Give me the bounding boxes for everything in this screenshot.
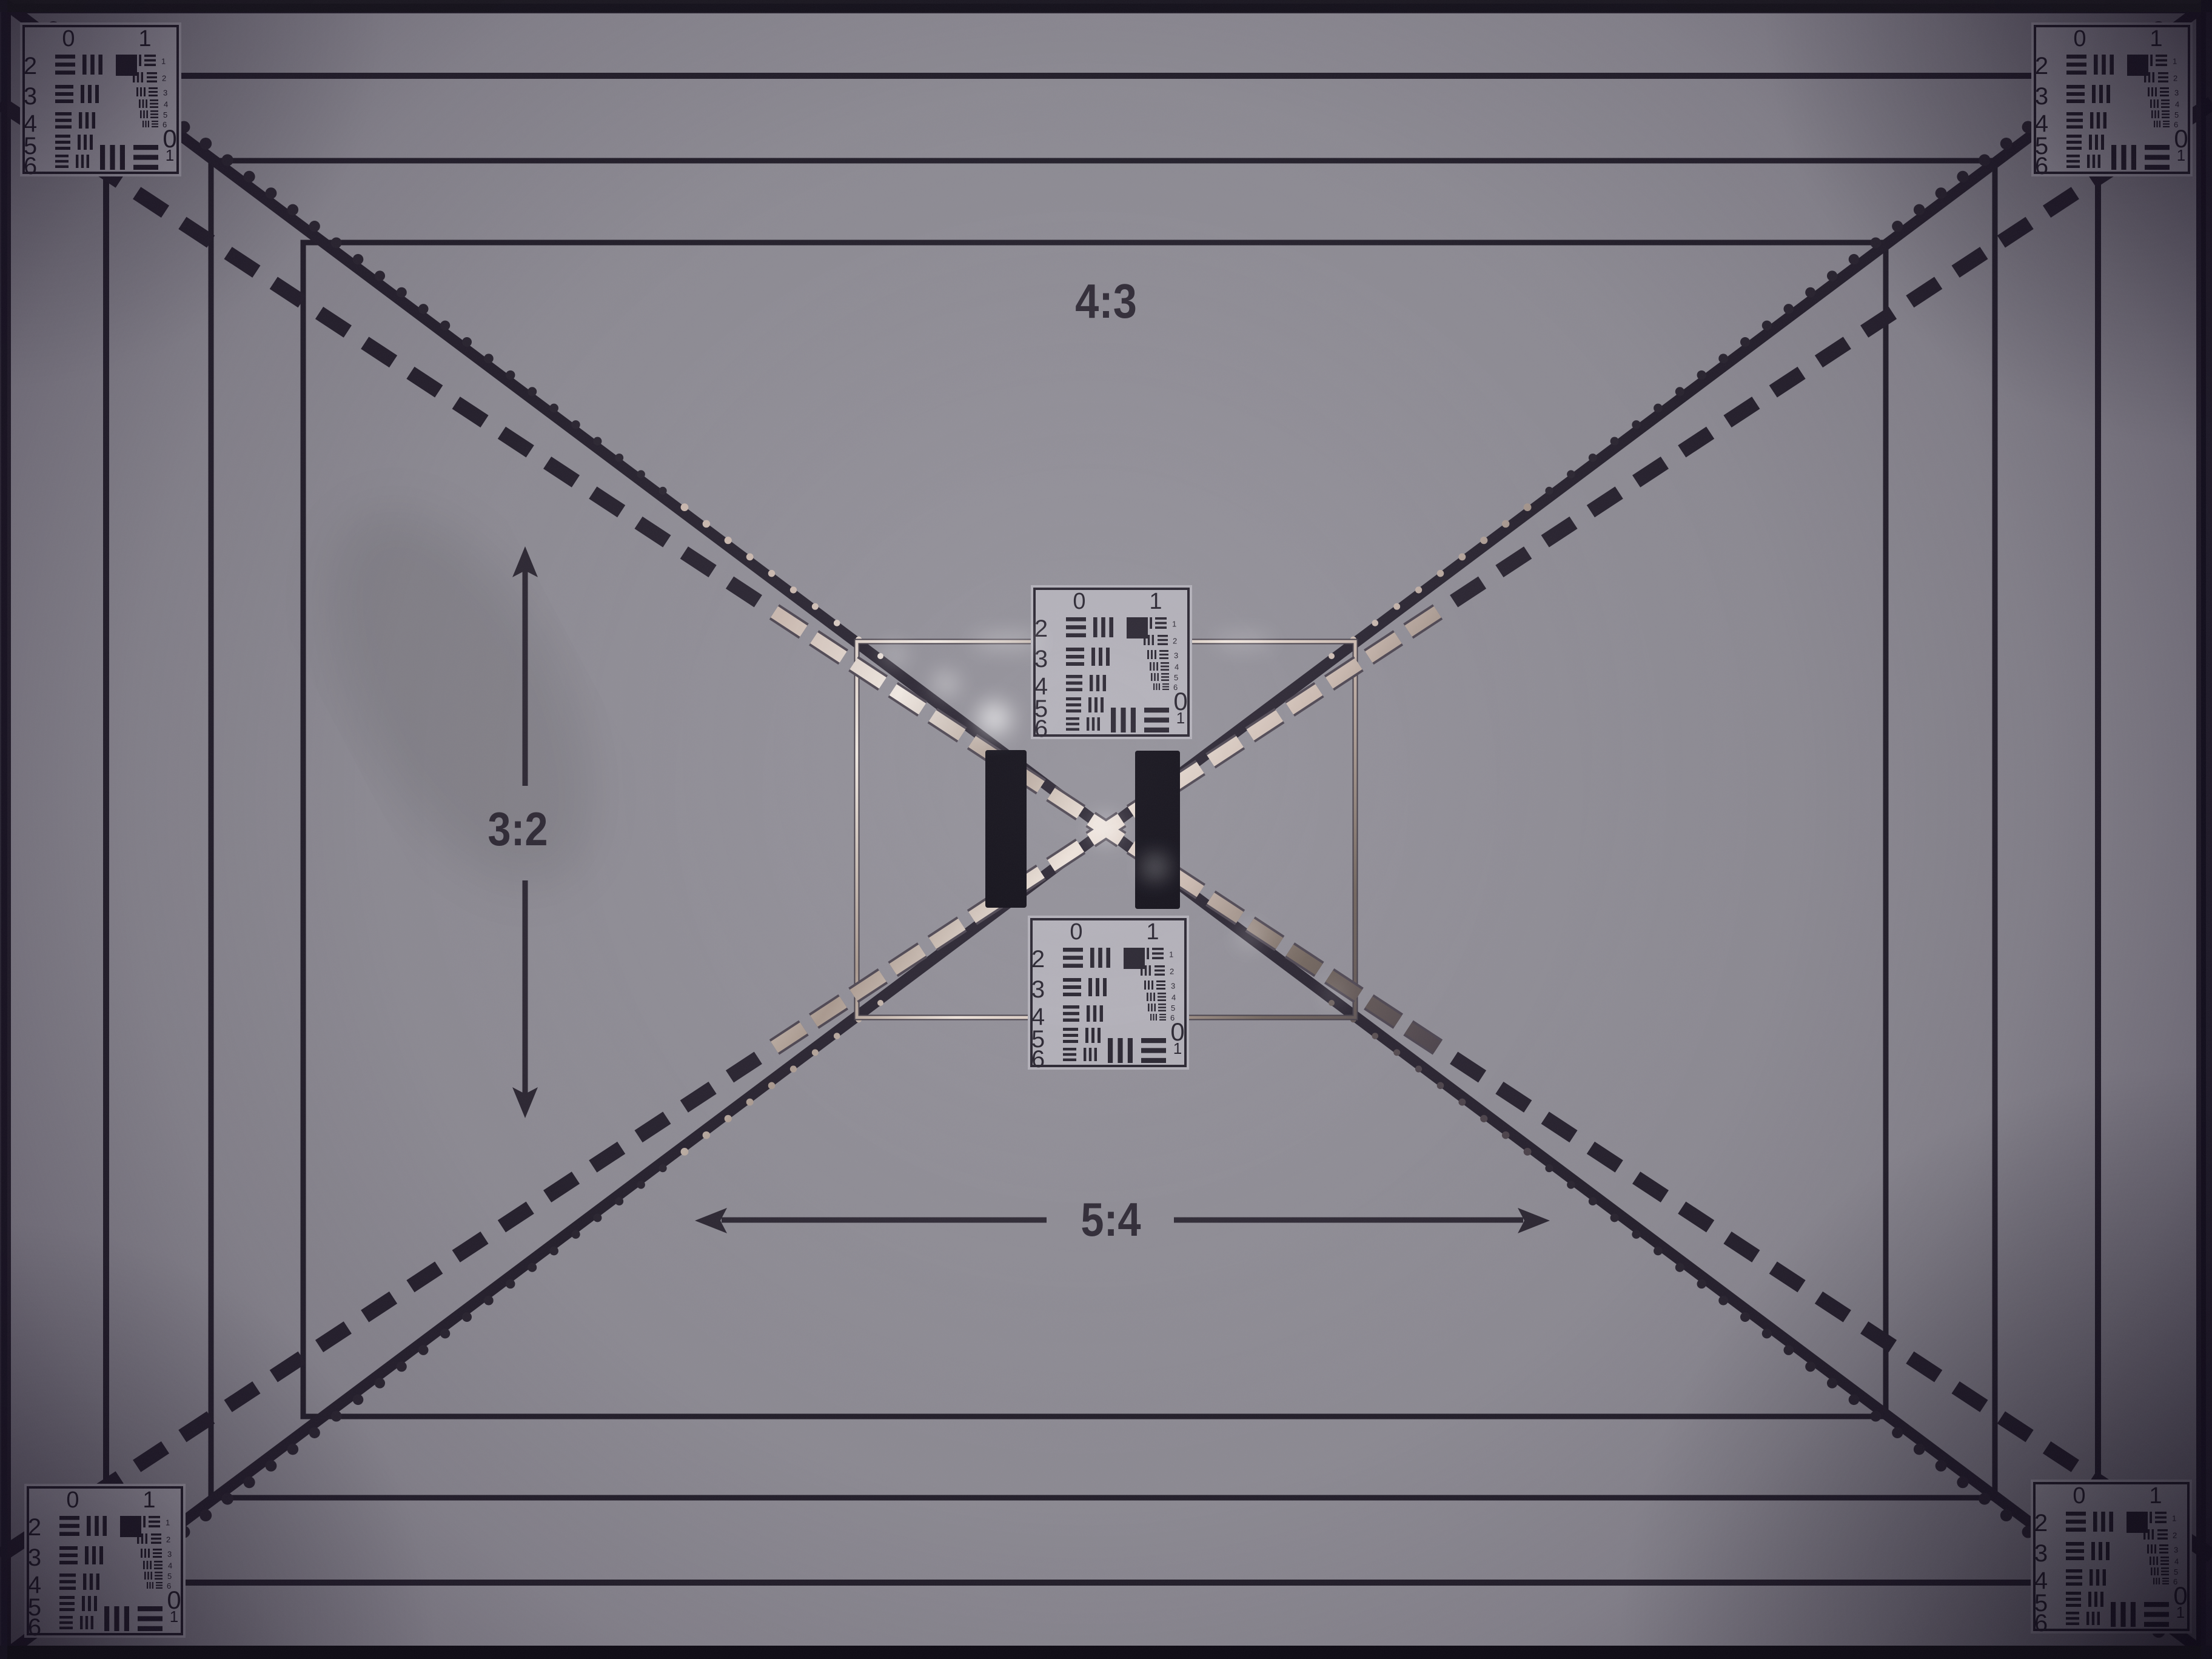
chart-canvas: 012345612345601 012345612345601 01234561… xyxy=(0,0,2212,1659)
test-chart-photo: 012345612345601 012345612345601 01234561… xyxy=(0,0,2212,1659)
film-grain xyxy=(0,0,2212,1659)
